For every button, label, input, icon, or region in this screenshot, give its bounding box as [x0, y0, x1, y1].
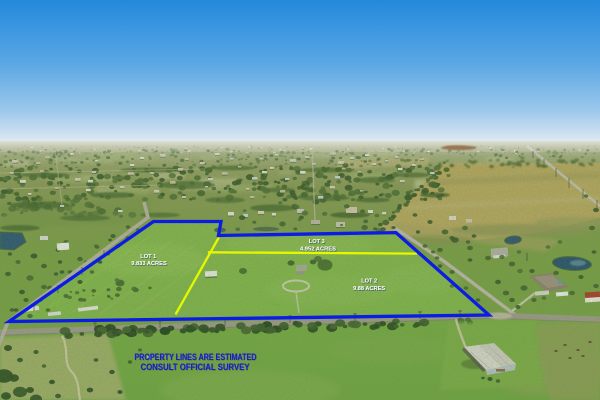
- svg-text:LOT 3: LOT 3: [309, 239, 326, 245]
- svg-text:9.833 ACRES: 9.833 ACRES: [131, 261, 167, 267]
- svg-text:4.952 ACRES: 4.952 ACRES: [300, 247, 336, 253]
- svg-text:LOT 1: LOT 1: [140, 254, 157, 260]
- svg-text:CONSULT OFFICIAL SURVEY: CONSULT OFFICIAL SURVEY: [141, 362, 250, 372]
- svg-text:PROPERTY LINES ARE ESTIMATED: PROPERTY LINES ARE ESTIMATED: [134, 352, 256, 362]
- svg-text:LOT 2: LOT 2: [361, 279, 377, 285]
- svg-text:9.88 ACRES: 9.88 ACRES: [353, 286, 385, 292]
